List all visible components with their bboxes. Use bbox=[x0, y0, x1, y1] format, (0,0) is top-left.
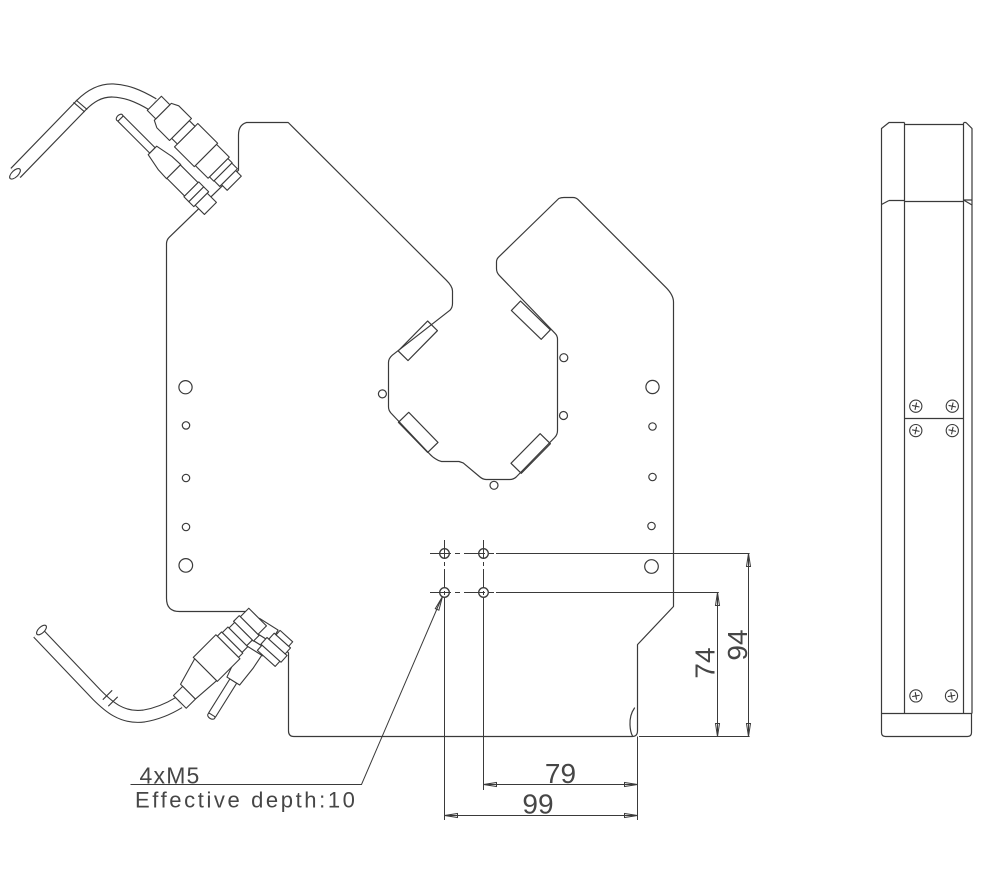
svg-text:4xM5: 4xM5 bbox=[140, 762, 201, 788]
svg-text:99: 99 bbox=[522, 789, 553, 820]
svg-text:94: 94 bbox=[722, 629, 753, 660]
svg-text:74: 74 bbox=[690, 647, 721, 678]
svg-text:79: 79 bbox=[545, 758, 576, 789]
svg-text:Effective depth:10: Effective depth:10 bbox=[135, 788, 358, 813]
